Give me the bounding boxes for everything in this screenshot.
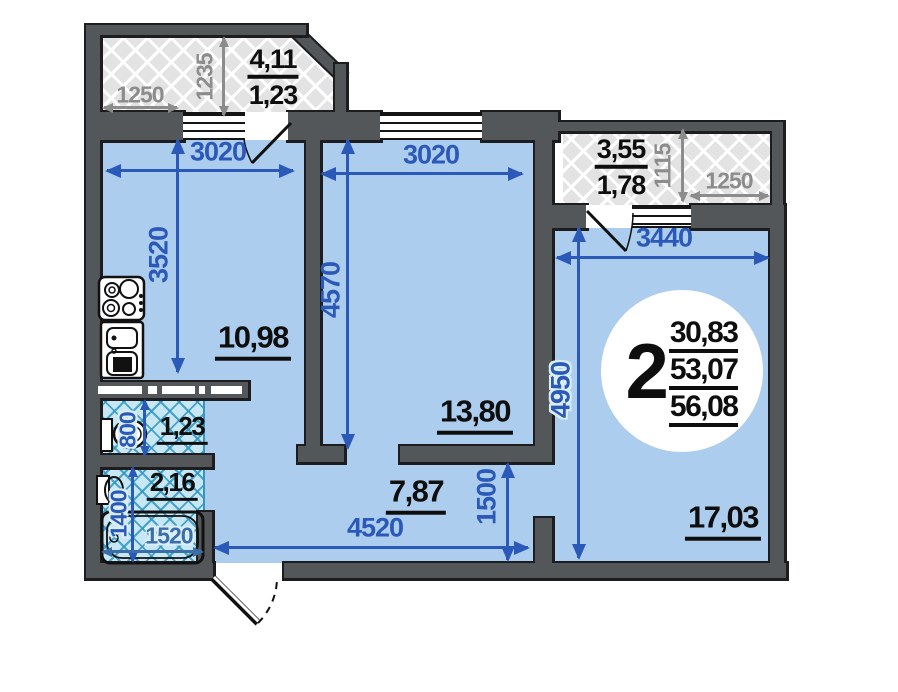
rooms-count: 2 bbox=[626, 336, 666, 406]
total-area: 56,08 bbox=[669, 390, 739, 427]
balcony-right-area-label: 3,55 1,78 bbox=[595, 134, 648, 200]
dim-balcony-right-width-line bbox=[691, 194, 768, 197]
dim-wc-label: 800 bbox=[117, 412, 140, 447]
dim-hallway-depth-label: 1500 bbox=[474, 469, 501, 525]
dim-living-depth-line bbox=[346, 140, 349, 448]
dim-living-depth-label: 4570 bbox=[318, 262, 345, 318]
apartment-areas: 30,83 53,07 56,08 bbox=[669, 316, 739, 427]
hallway-area-label: 7,87 bbox=[386, 476, 446, 515]
dim-hallway-depth-line bbox=[506, 464, 509, 560]
balcony-left-area-full: 4,11 bbox=[247, 44, 298, 79]
kitchen-sink-icon bbox=[101, 322, 143, 378]
area-without-balconies: 53,07 bbox=[669, 353, 739, 390]
dim-kitchen-width-line bbox=[107, 169, 293, 172]
dim-bathroom-depth-label: 1400 bbox=[108, 490, 131, 537]
dim-kitchen-depth-line bbox=[176, 140, 179, 372]
dim-balcony-right-depth-label: 1115 bbox=[652, 144, 675, 189]
bathroom-area-label: 2,16 bbox=[147, 469, 198, 501]
dim-bathtub-label: 1520 bbox=[145, 525, 192, 548]
floor-plan: 3020 3520 3020 4570 3440 4950 4520 1500 … bbox=[0, 0, 898, 692]
balcony-door-swing-bedroom bbox=[587, 211, 633, 251]
dim-hallway-width-label: 4520 bbox=[347, 515, 403, 542]
balcony-left-area-label: 4,11 1,23 bbox=[247, 44, 298, 110]
dim-balcony-left-depth-line bbox=[222, 38, 225, 115]
entry-door bbox=[213, 577, 277, 623]
dim-bedroom-depth-label: 4950 bbox=[548, 362, 575, 418]
dim-balcony-left-depth-label: 1235 bbox=[194, 53, 217, 100]
balcony-right-area-reduced: 1,78 bbox=[595, 169, 648, 200]
dim-living-width-label: 3020 bbox=[403, 142, 459, 169]
dim-balcony-left-width-label: 1250 bbox=[116, 84, 163, 107]
dim-wc-line bbox=[143, 401, 146, 455]
balcony-right-area-full: 3,55 bbox=[595, 134, 648, 169]
dim-balcony-right-depth-line bbox=[681, 130, 684, 201]
dim-kitchen-depth-label: 3520 bbox=[146, 227, 173, 283]
wc-area-label: 1,23 bbox=[157, 413, 208, 445]
dim-bedroom-depth-line bbox=[577, 228, 580, 558]
dim-kitchen-width-label: 3020 bbox=[190, 139, 246, 166]
balcony-door-swing-kitchen bbox=[244, 123, 291, 163]
balcony-left-area-reduced: 1,23 bbox=[247, 79, 298, 110]
kitchen-area-label: 10,98 bbox=[215, 322, 291, 361]
bedroom-area-label: 17,03 bbox=[685, 502, 761, 541]
dim-bedroom-width-label: 3440 bbox=[636, 225, 692, 252]
dim-bathtub-line bbox=[103, 550, 202, 553]
living-room-area-label: 13,80 bbox=[437, 396, 513, 435]
dim-balcony-right-width-label: 1250 bbox=[705, 170, 752, 193]
dim-living-width-line bbox=[322, 172, 522, 175]
stove-icon bbox=[99, 277, 144, 320]
dim-hallway-width-line bbox=[215, 546, 528, 549]
dim-bedroom-width-line bbox=[557, 256, 768, 259]
apartment-summary-badge: 2 30,83 53,07 56,08 bbox=[601, 290, 763, 452]
living-area-total: 30,83 bbox=[669, 316, 739, 353]
